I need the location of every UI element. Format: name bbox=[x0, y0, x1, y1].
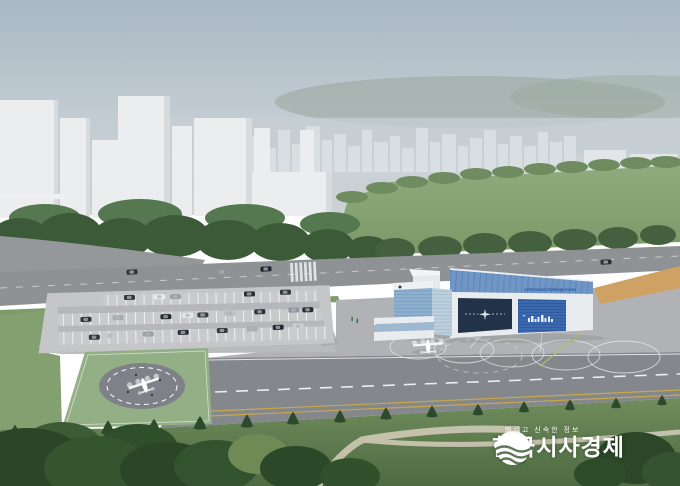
building-logo-mark bbox=[399, 286, 402, 289]
boundary-fence bbox=[0, 194, 64, 199]
aerial-rendering: UAM Grand Challenge Korea bbox=[0, 0, 680, 486]
vertiport-pad bbox=[62, 348, 212, 428]
press-slogan: 빠르고 신속한 정보 bbox=[505, 427, 625, 434]
parking-lot bbox=[37, 285, 334, 353]
watermark: 빠르고 신속한 정보 한국시사경제 bbox=[492, 427, 625, 459]
building-sign: UAM Grand Challenge Korea bbox=[524, 287, 577, 292]
scene-canvas: UAM Grand Challenge Korea bbox=[0, 0, 680, 486]
